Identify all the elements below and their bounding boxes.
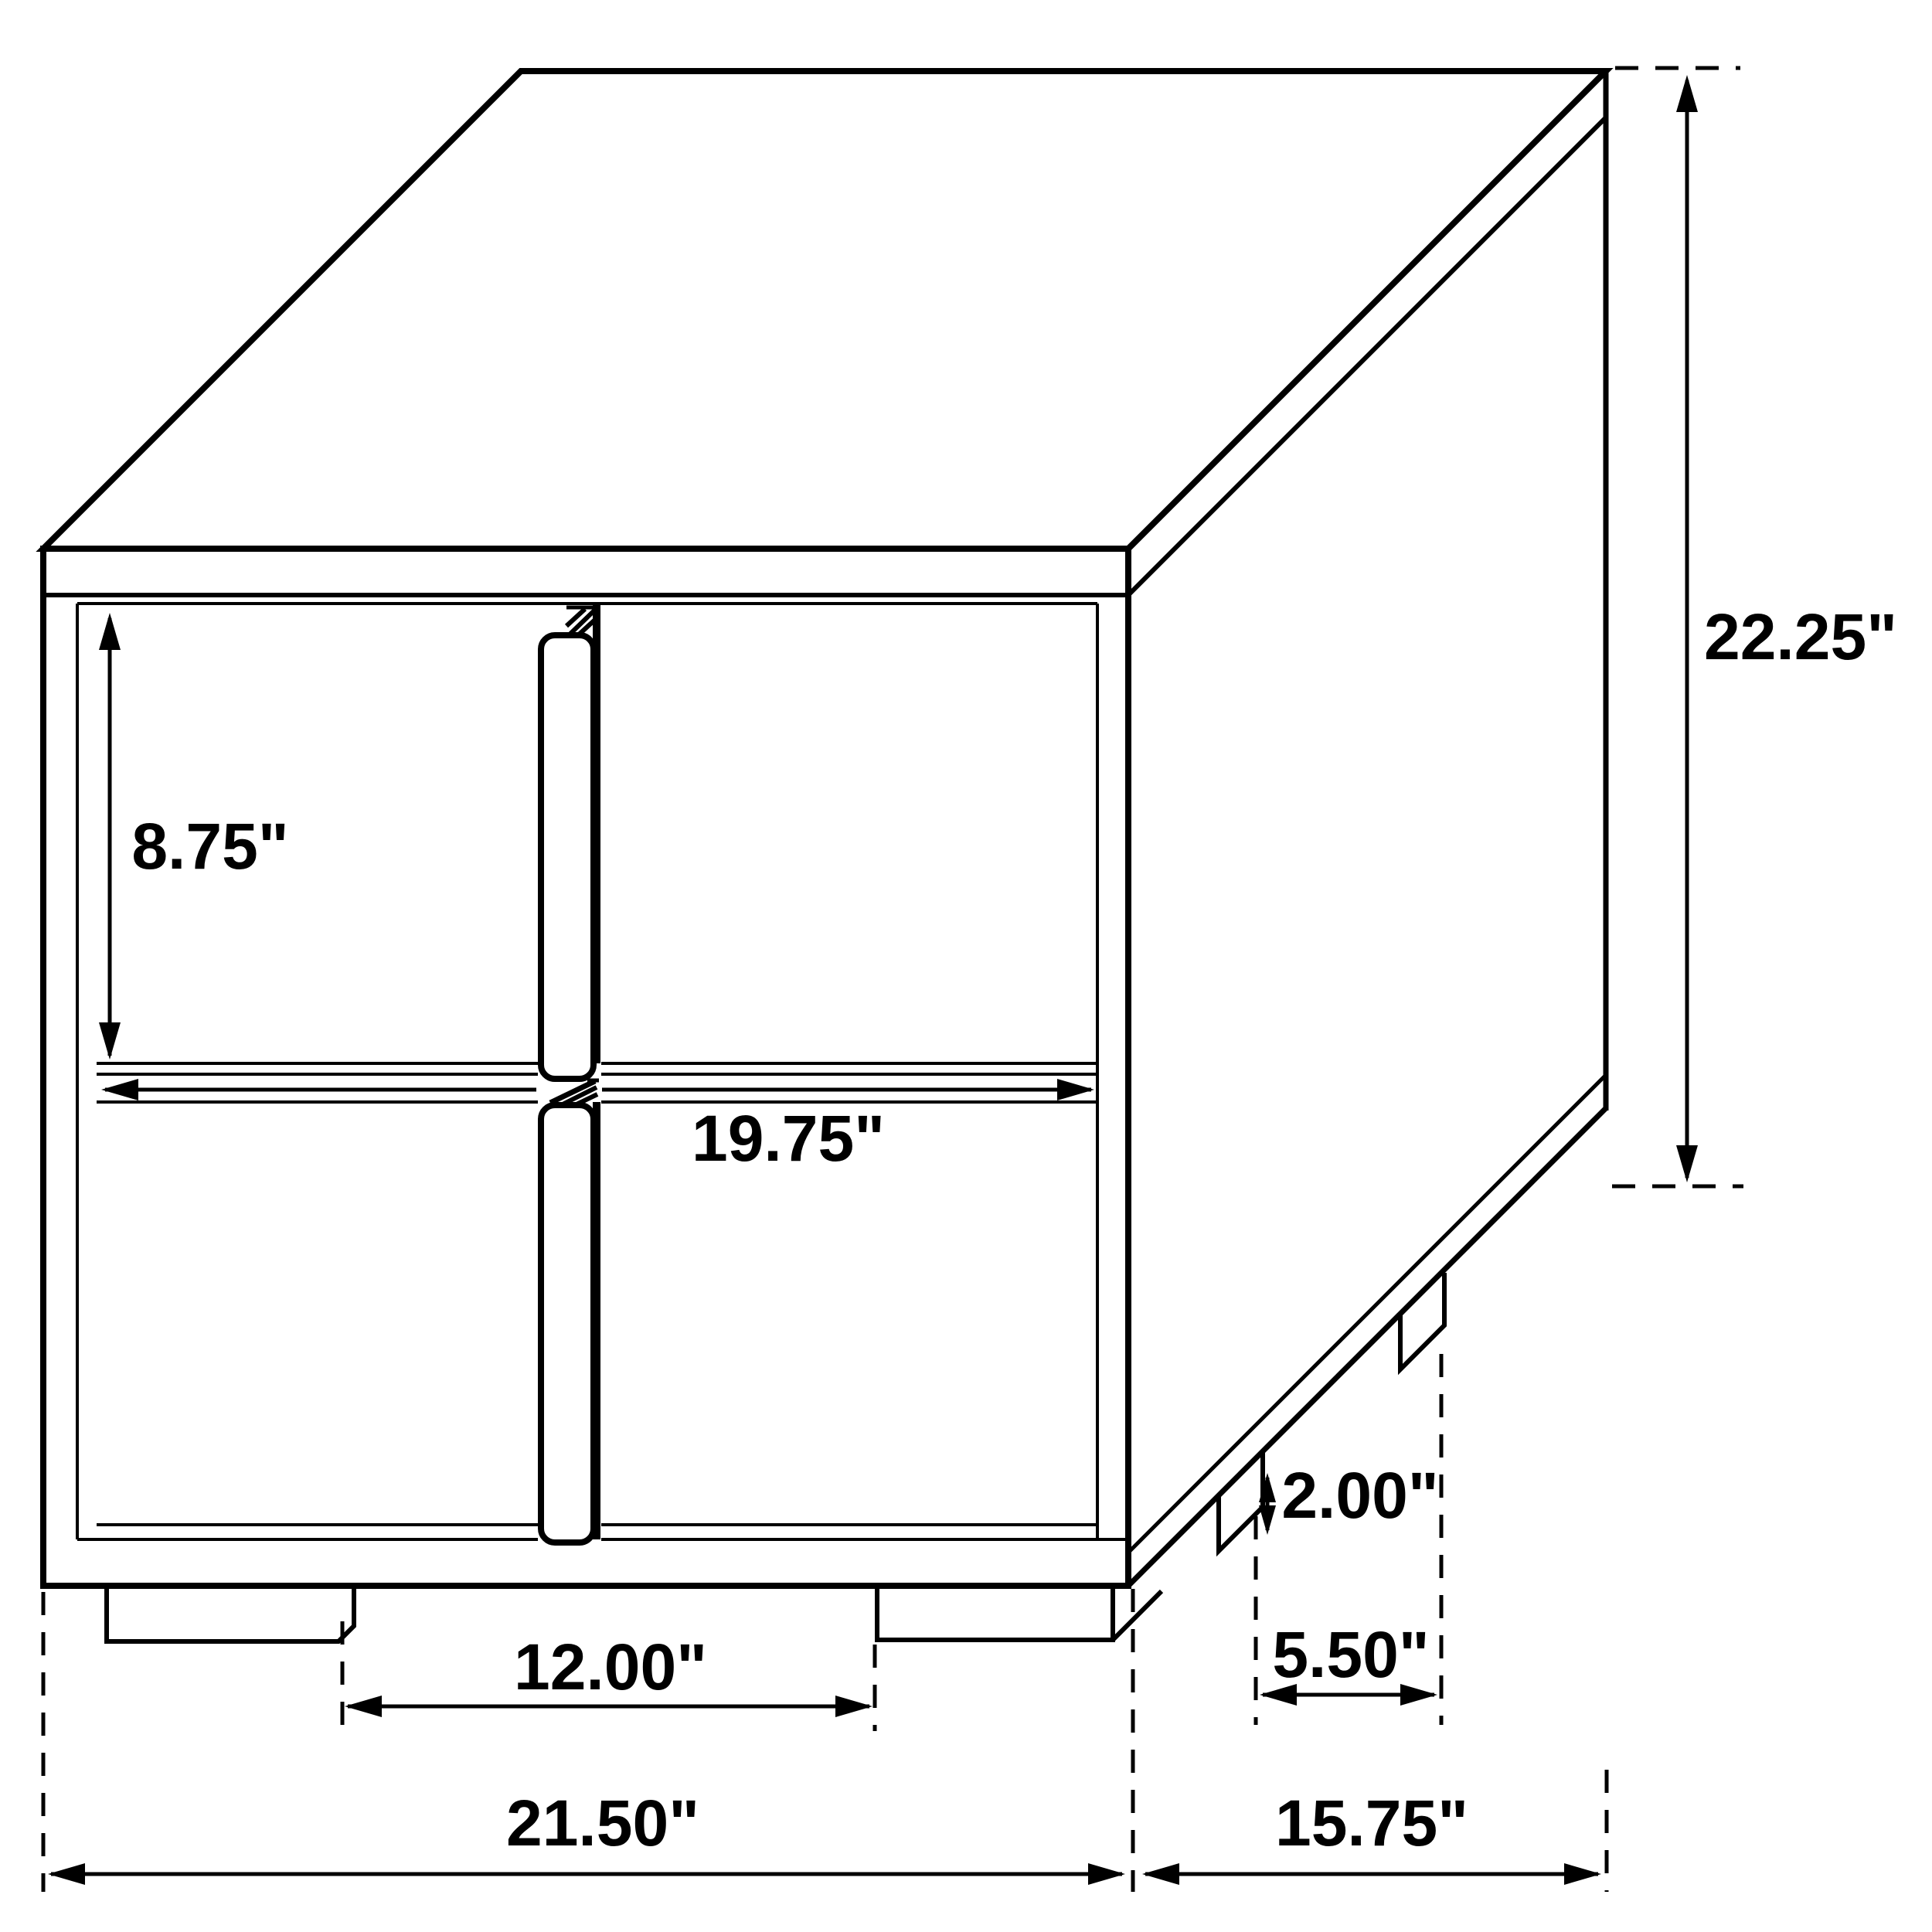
arrowhead-down — [1676, 1145, 1698, 1182]
top-face — [43, 71, 1606, 549]
arrowhead-right — [1564, 1863, 1601, 1885]
dimension-label: 12.00" — [514, 1631, 707, 1703]
dimension-drawing-page: 8.75" 19.75" 22.25" 12.00" 2.00" — [0, 0, 1932, 1932]
top-slab-side-edge — [1128, 117, 1606, 595]
top-drawer-handle — [541, 635, 594, 1079]
front-right-foot — [877, 1586, 1113, 1640]
dimension-label: 15.75" — [1275, 1787, 1468, 1859]
bottom-handle-hatch-detail — [550, 1080, 599, 1105]
dimension-label: 2.00" — [1281, 1459, 1438, 1532]
dimension-side-feet-spacing: 5.50" — [1256, 1354, 1441, 1725]
arrowhead-down — [1259, 1505, 1276, 1535]
arrowhead-up — [1676, 75, 1698, 112]
arrowhead-up — [99, 613, 121, 650]
dimension-label: 8.75" — [131, 810, 288, 883]
arrowhead-right — [835, 1696, 872, 1717]
front-left-foot — [107, 1586, 354, 1641]
bottom-drawer-handle — [541, 1105, 594, 1543]
dimension-overall-height: 22.25" — [1612, 68, 1897, 1186]
arrowhead-down — [99, 1022, 121, 1060]
dimension-front-feet-spacing: 12.00" — [342, 1621, 875, 1731]
dimension-overall-depth: 15.75" — [1142, 1770, 1607, 1892]
arrowhead-left — [1142, 1863, 1179, 1885]
dimension-foot-height: 2.00" — [1259, 1459, 1439, 1535]
arrowhead-left — [101, 1079, 138, 1100]
dimension-label: 21.50" — [506, 1787, 699, 1859]
dimension-label: 19.75" — [692, 1102, 885, 1175]
front-right-foot-receding-edge — [1113, 1591, 1162, 1640]
dimension-label: 22.25" — [1704, 600, 1897, 673]
arrowhead-left — [48, 1863, 85, 1885]
top-handle-hatch-detail — [566, 607, 597, 635]
nightstand-dimension-diagram: 8.75" 19.75" 22.25" 12.00" 2.00" — [0, 0, 1932, 1932]
arrowhead-right — [1088, 1863, 1125, 1885]
dimension-drawer-front-height: 8.75" — [99, 613, 289, 1060]
side-rear-foot — [1400, 1273, 1444, 1369]
arrowhead-right — [1057, 1079, 1094, 1100]
dimension-label: 5.50" — [1272, 1618, 1429, 1691]
arrowhead-left — [345, 1696, 382, 1717]
